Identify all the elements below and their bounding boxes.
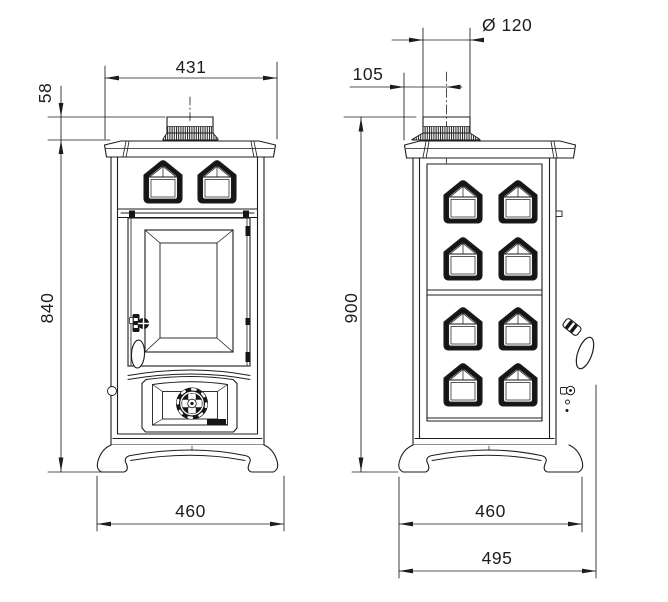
arrow-icon	[270, 522, 284, 527]
arrow-icon	[390, 85, 404, 90]
side-arch-panels	[444, 181, 537, 406]
front-fire-door	[128, 218, 251, 366]
dim-front-base-width: 460	[175, 501, 206, 521]
arrow-icon	[59, 458, 64, 472]
dim-side-base-depth: 460	[475, 501, 506, 521]
front-arch-panel	[144, 161, 182, 203]
side-arch-panel	[444, 364, 482, 406]
side-arch-panel	[444, 238, 482, 280]
arrow-icon	[105, 76, 119, 81]
front-air-vent-rosette	[176, 388, 208, 420]
front-view	[97, 97, 277, 472]
dimension-side-flue-diameter: Ø 120	[392, 15, 532, 42]
arrow-icon	[59, 140, 64, 154]
dim-front-top-width: 431	[176, 57, 207, 77]
arrow-icon	[97, 522, 111, 527]
handle-grip	[573, 335, 597, 371]
arrow-icon	[399, 569, 413, 574]
side-arch-panel	[444, 181, 482, 223]
dimensions: 431 58 840 460 Ø 120	[35, 15, 596, 578]
front-door-handle	[131, 340, 145, 369]
dimension-front-body-height: 840	[37, 293, 103, 472]
arrow-icon	[568, 522, 582, 527]
side-latch-knob	[561, 386, 575, 412]
dim-front-body-height: 840	[37, 293, 57, 324]
front-base	[97, 434, 277, 472]
side-view	[399, 28, 597, 472]
front-top-plate	[105, 141, 276, 157]
dim-side-flue-diameter: Ø 120	[482, 15, 532, 35]
side-flue-collar	[412, 117, 480, 140]
arrow-icon	[409, 38, 423, 43]
dimension-side-overall-depth: 495	[399, 385, 596, 578]
door-hinge-icon	[246, 352, 251, 362]
door-frame-outer	[145, 230, 233, 352]
arrow-icon	[359, 118, 364, 132]
dimension-side-overall-height: 900	[341, 117, 416, 472]
side-base	[399, 439, 583, 473]
side-arch-panel	[499, 364, 537, 406]
drawing-canvas: 431 58 840 460 Ø 120	[0, 0, 668, 602]
dimension-front-base-width: 460	[97, 476, 284, 531]
front-door-latch	[130, 314, 150, 332]
arrow-icon	[359, 458, 364, 472]
arrow-icon	[263, 76, 277, 81]
arrow-icon	[399, 522, 413, 527]
side-arch-panel	[499, 181, 537, 223]
front-upper-arch-panels	[144, 161, 236, 203]
stove-dimension-drawing: 431 58 840 460 Ø 120	[0, 0, 668, 602]
dim-side-flue-offset: 105	[353, 64, 384, 84]
front-ash-drawer-slot	[207, 419, 226, 425]
arrow-icon	[470, 38, 484, 43]
side-top-plate	[405, 141, 576, 158]
door-hinge-icon	[246, 226, 251, 236]
front-shelf	[118, 209, 258, 218]
door-hinge-icon	[246, 318, 251, 325]
side-arch-panel	[444, 308, 482, 350]
front-arch-panel	[198, 161, 236, 203]
dim-side-overall-depth: 495	[482, 548, 513, 568]
side-arch-panel	[499, 238, 537, 280]
arrow-icon	[59, 103, 64, 117]
arrow-icon	[447, 85, 461, 90]
side-hinge-pin	[556, 211, 562, 217]
front-flue-collar	[163, 97, 218, 140]
side-arch-panel	[499, 308, 537, 350]
front-side-bolt	[108, 387, 117, 396]
dim-front-collar-height: 58	[35, 83, 55, 103]
arrow-icon	[582, 569, 596, 574]
dim-side-overall-height: 900	[341, 293, 361, 324]
side-door-handle	[562, 318, 597, 371]
door-glass	[160, 243, 217, 338]
side-body-pillars	[413, 158, 562, 445]
